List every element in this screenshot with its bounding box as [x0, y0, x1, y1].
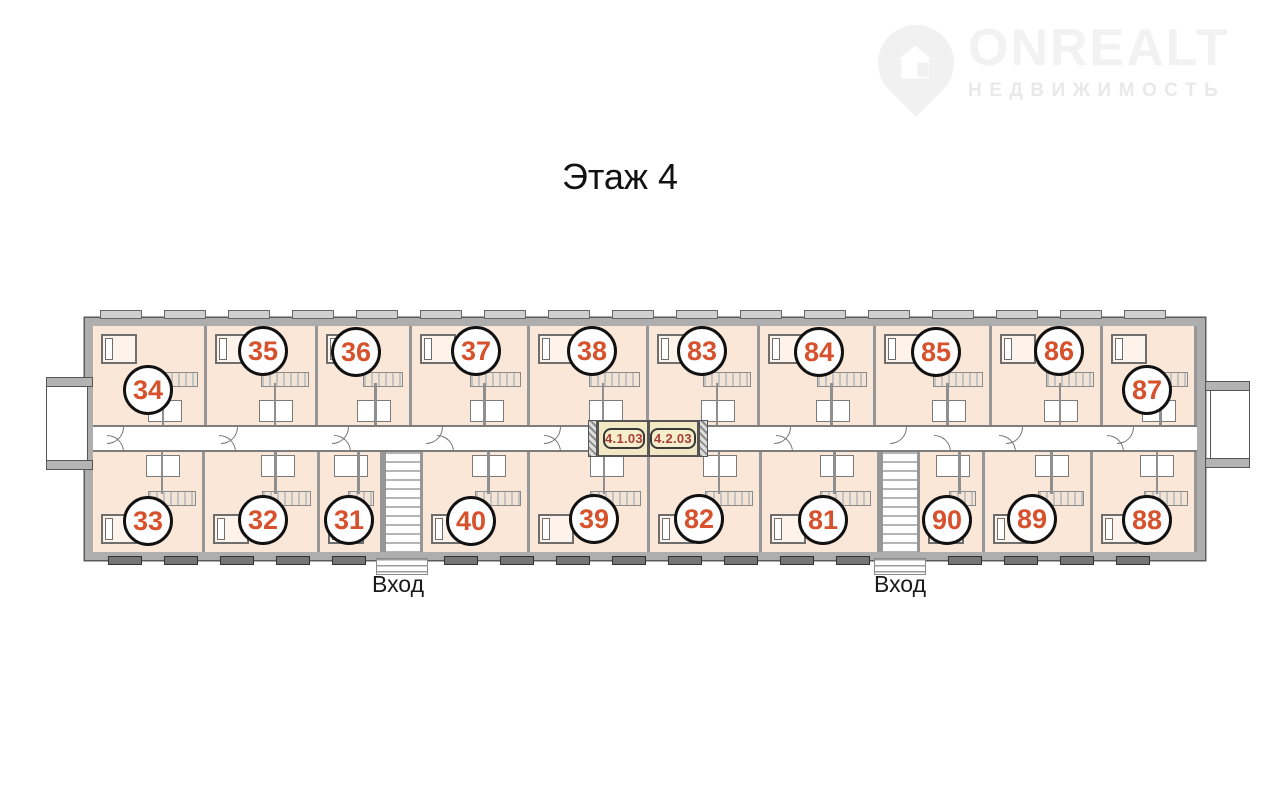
bed-pillow — [662, 518, 670, 540]
unit-number-circle-90[interactable]: 90 — [922, 495, 972, 545]
window-stub-bottom — [1116, 556, 1150, 565]
window-stub-bottom — [444, 556, 478, 565]
window-stub-top — [996, 310, 1038, 319]
interior-partition-wall — [1059, 383, 1062, 425]
balcony-east-rail-bottom — [1205, 458, 1250, 468]
interior-partition-wall — [357, 452, 360, 494]
bed-furniture — [1000, 334, 1036, 364]
interior-partition-wall — [830, 383, 833, 425]
bathroom-box — [936, 455, 970, 477]
bed-pillow — [661, 338, 669, 360]
interior-partition-wall — [958, 452, 961, 494]
elevator-label-2: 4.2.03 — [650, 428, 696, 449]
unit-number-circle-87[interactable]: 87 — [1122, 365, 1172, 415]
interior-partition-wall — [603, 452, 606, 494]
unit-number-circle-39[interactable]: 39 — [569, 494, 619, 544]
unit-number-circle-84[interactable]: 84 — [794, 327, 844, 377]
unit-number-circle-89[interactable]: 89 — [1007, 494, 1057, 544]
elevator-wall-hatch-right — [699, 420, 708, 457]
page: ONREALT НЕДВИЖИМОСТЬ Этаж 4 4.1.03 4.2.0… — [0, 0, 1280, 803]
bed-pillow — [542, 518, 550, 540]
unit-number-circle-36[interactable]: 36 — [331, 327, 381, 377]
bed-pillow — [888, 338, 896, 360]
bathroom-box — [589, 400, 623, 422]
balcony-west — [46, 377, 88, 470]
interior-partition-wall — [161, 452, 164, 494]
interior-partition-wall — [602, 383, 605, 425]
interior-partition-wall — [274, 383, 277, 425]
unit-number-circle-88[interactable]: 88 — [1122, 495, 1172, 545]
floor-plan: 4.1.03 4.2.03 Вход Вход 3435363738838485… — [0, 0, 1280, 803]
bathroom-box — [932, 400, 966, 422]
bed-pillow — [219, 338, 227, 360]
interior-partition-wall — [274, 452, 277, 494]
stairwell-east — [880, 452, 920, 552]
window-stub-bottom — [164, 556, 198, 565]
window-stub-top — [804, 310, 846, 319]
bed-pillow — [1105, 518, 1113, 540]
window-stub-top — [868, 310, 910, 319]
bathroom-box — [334, 455, 368, 477]
window-stub-top — [740, 310, 782, 319]
window-stub-top — [100, 310, 142, 319]
interior-partition-wall — [1050, 452, 1053, 494]
interior-partition-wall — [716, 383, 719, 425]
interior-partition-wall — [946, 383, 949, 425]
unit-number-circle-40[interactable]: 40 — [446, 496, 496, 546]
entrance-label-east: Вход — [874, 571, 926, 598]
bathroom-box — [261, 455, 295, 477]
window-stub-bottom — [556, 556, 590, 565]
bed-pillow — [1004, 338, 1012, 360]
window-stub-bottom — [1004, 556, 1038, 565]
window-stub-bottom — [276, 556, 310, 565]
window-stub-top — [676, 310, 718, 319]
bathroom-box — [146, 455, 180, 477]
bed-pillow — [997, 518, 1005, 540]
bathroom-box — [590, 455, 624, 477]
balcony-east-rail-top — [1205, 381, 1250, 391]
window-stub-top — [356, 310, 398, 319]
unit-number-circle-32[interactable]: 32 — [238, 495, 288, 545]
window-stub-top — [228, 310, 270, 319]
unit-number-circle-83[interactable]: 83 — [677, 326, 727, 376]
interior-partition-wall — [1156, 452, 1159, 494]
window-stub-bottom — [836, 556, 870, 565]
window-stub-top — [420, 310, 462, 319]
bathroom-box — [816, 400, 850, 422]
window-stub-top — [1060, 310, 1102, 319]
window-stub-bottom — [948, 556, 982, 565]
kitchen-counter — [363, 372, 403, 387]
balcony-west-rail-bottom — [46, 460, 93, 470]
window-stub-top — [292, 310, 334, 319]
window-stub-top — [484, 310, 526, 319]
bed-pillow — [217, 518, 225, 540]
unit-number-circle-81[interactable]: 81 — [798, 495, 848, 545]
window-stub-bottom — [1060, 556, 1094, 565]
window-stub-top — [932, 310, 974, 319]
interior-partition-wall — [833, 452, 836, 494]
bed-pillow — [542, 338, 550, 360]
stairwell-west — [383, 452, 423, 552]
unit-number-circle-31[interactable]: 31 — [324, 495, 374, 545]
bed-furniture — [1111, 334, 1147, 364]
balcony-west-rail-top — [46, 377, 93, 387]
unit-number-circle-82[interactable]: 82 — [674, 494, 724, 544]
window-stub-top — [1124, 310, 1166, 319]
unit-number-circle-86[interactable]: 86 — [1034, 326, 1084, 376]
bed-furniture — [101, 334, 137, 364]
window-stub-top — [548, 310, 590, 319]
window-stub-top — [164, 310, 206, 319]
window-stub-bottom — [668, 556, 702, 565]
bathroom-box — [820, 455, 854, 477]
interior-partition-wall — [374, 383, 377, 425]
unit-number-circle-34[interactable]: 34 — [123, 365, 173, 415]
elevator-label-1: 4.1.03 — [603, 428, 645, 449]
bed-pillow — [105, 518, 113, 540]
bed-pillow — [774, 518, 782, 540]
bed-pillow — [424, 338, 432, 360]
window-stub-bottom — [780, 556, 814, 565]
interior-partition-wall — [487, 452, 490, 494]
window-stub-top — [612, 310, 654, 319]
bathroom-box — [703, 455, 737, 477]
window-stub-bottom — [220, 556, 254, 565]
interior-partition-wall — [718, 452, 721, 494]
window-stub-bottom — [612, 556, 646, 565]
balcony-east — [1210, 381, 1250, 468]
bed-pillow — [772, 338, 780, 360]
window-stub-bottom — [332, 556, 366, 565]
unit-number-circle-85[interactable]: 85 — [911, 327, 961, 377]
bed-pillow — [435, 518, 443, 540]
bed-pillow — [105, 338, 113, 360]
unit-number-circle-38[interactable]: 38 — [567, 326, 617, 376]
entrance-label-west: Вход — [372, 571, 424, 598]
unit-number-circle-37[interactable]: 37 — [451, 326, 501, 376]
bed-pillow — [1115, 338, 1123, 360]
window-stub-bottom — [108, 556, 142, 565]
window-stub-bottom — [500, 556, 534, 565]
window-stub-bottom — [724, 556, 758, 565]
elevator-wall-hatch-left — [588, 420, 597, 457]
unit-number-circle-35[interactable]: 35 — [238, 326, 288, 376]
interior-partition-wall — [483, 383, 486, 425]
bathroom-box — [470, 400, 504, 422]
unit-number-circle-33[interactable]: 33 — [123, 496, 173, 546]
